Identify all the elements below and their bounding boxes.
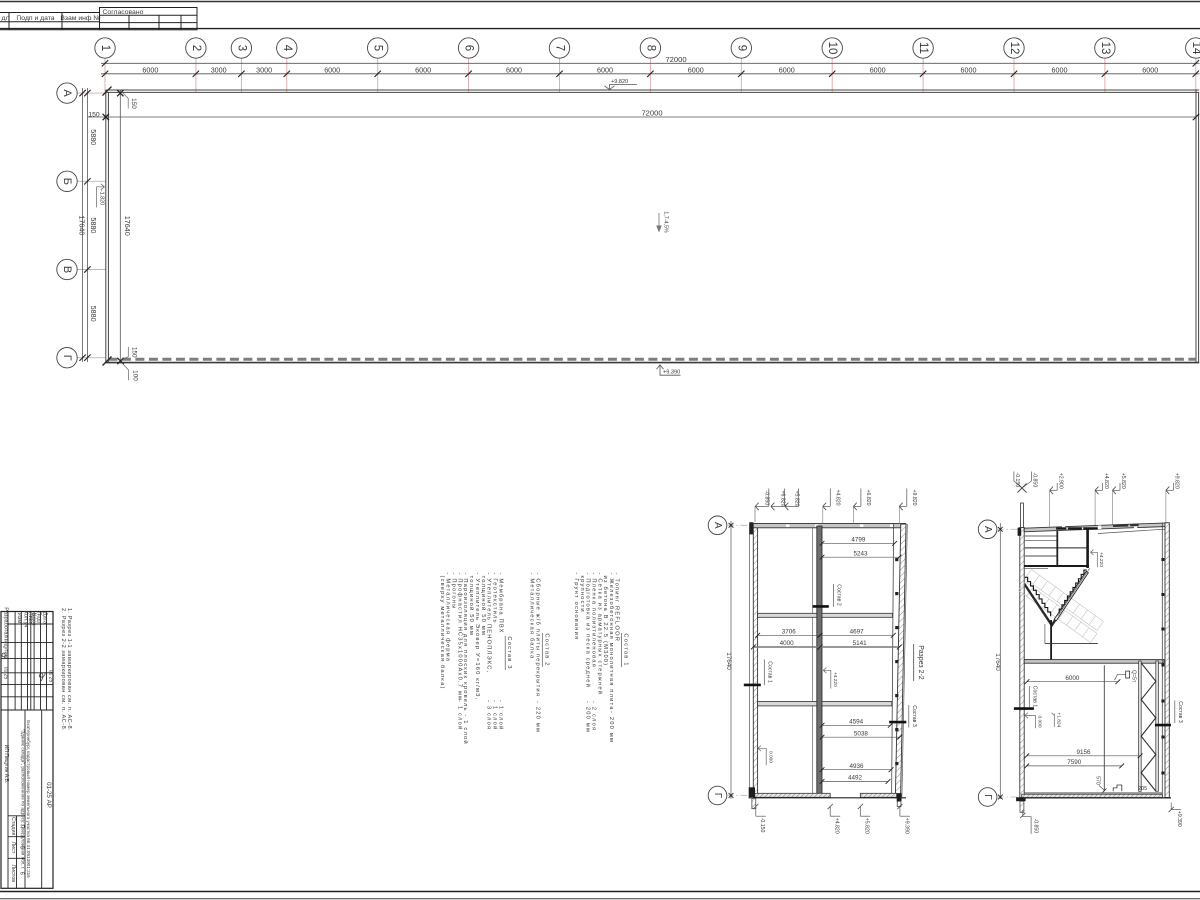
svg-text:2: 2 [190, 45, 202, 51]
svg-text:Согласовано: Согласовано [103, 9, 144, 16]
svg-text:100: 100 [132, 370, 139, 381]
svg-text:1. Разрез 1-1 замаркирован см.: 1. Разрез 1-1 замаркирован см. л. АС-8. [66, 608, 72, 731]
svg-text:Разрез 2-2: Разрез 2-2 [917, 645, 924, 679]
svg-text:8: 8 [644, 45, 656, 51]
svg-text:+4.820: +4.820 [1103, 473, 1109, 489]
svg-text:+4.220: +4.220 [1098, 552, 1104, 567]
svg-text:Лист: Лист [10, 842, 16, 854]
svg-text:дл: дл [2, 15, 10, 22]
svg-text:5880: 5880 [89, 217, 98, 233]
svg-text:205: 205 [1138, 786, 1147, 792]
svg-text:Состав 1: Состав 1 [767, 661, 773, 683]
svg-text:7590: 7590 [1067, 759, 1082, 766]
svg-text:+4.220: +4.220 [832, 672, 838, 687]
svg-text:5141: 5141 [853, 640, 868, 647]
svg-text:17640: 17640 [123, 216, 132, 236]
svg-text:Состав 2: Состав 2 [836, 584, 842, 606]
svg-text:Г: Г [61, 355, 73, 361]
svg-text:01.25: 01.25 [48, 670, 54, 683]
svg-text:+6.820: +6.820 [779, 491, 785, 507]
svg-text:+9.820: +9.820 [611, 79, 628, 85]
svg-text:6000: 6000 [779, 65, 795, 74]
svg-text:6: 6 [19, 872, 25, 875]
svg-text:+4.820: +4.820 [834, 818, 840, 834]
svg-text:-0.150: -0.150 [1014, 473, 1020, 488]
svg-text:Q=5т: Q=5т [1130, 670, 1136, 683]
svg-text:- Грунт основания: - Грунт основания [573, 573, 579, 641]
svg-text:+9.390: +9.390 [1176, 811, 1182, 827]
svg-text:1: 1 [99, 45, 111, 51]
svg-text:А: А [712, 522, 723, 529]
svg-text:А: А [982, 526, 993, 533]
svg-text:А: А [61, 89, 73, 97]
svg-text:+6.820: +6.820 [865, 490, 871, 506]
svg-text:+2.900: +2.900 [1057, 473, 1063, 489]
svg-text:3706: 3706 [782, 629, 797, 636]
svg-text:1,7-4,5%: 1,7-4,5% [663, 211, 669, 233]
svg-text:9156: 9156 [1076, 749, 1091, 756]
svg-text:- Металлическая балка: - Металлическая балка [529, 573, 535, 660]
svg-text:Состав 3: Состав 3 [911, 705, 917, 727]
svg-text:4000: 4000 [780, 640, 795, 647]
svg-text:-0.150: -0.150 [759, 818, 765, 833]
svg-text:6000: 6000 [1052, 65, 1068, 74]
svg-text:- 3 слоя: - 3 слоя [486, 700, 492, 730]
svg-text:Г: Г [712, 793, 723, 799]
svg-text:4594: 4594 [849, 719, 864, 726]
svg-text:7: 7 [554, 45, 566, 51]
svg-text:Екатеринбург, кадастровый номе: Екатеринбург, кадастровый номер земельно… [26, 720, 32, 878]
svg-text:6000: 6000 [597, 65, 613, 74]
svg-text:Состав 3: Состав 3 [1177, 701, 1183, 723]
svg-text:6000: 6000 [324, 65, 340, 74]
svg-text:13: 13 [1099, 42, 1111, 55]
svg-text:+5.820: +5.820 [793, 491, 799, 507]
svg-text:01.25: 01.25 [2, 667, 8, 680]
svg-text:17640: 17640 [725, 652, 732, 670]
svg-text:Разработал: Разработал [2, 607, 8, 637]
svg-text:+9.820: +9.820 [1174, 473, 1180, 489]
svg-text:(сверху металлическая балка): (сверху металлическая балка) [439, 576, 445, 690]
svg-text:Листов: Листов [10, 865, 16, 883]
svg-text:5: 5 [372, 45, 384, 51]
svg-text:5243: 5243 [853, 550, 868, 557]
svg-text:5038: 5038 [854, 730, 869, 737]
svg-text:4: 4 [281, 45, 293, 52]
svg-text:Б: Б [61, 178, 73, 185]
svg-text:+1.824: +1.824 [1056, 712, 1062, 727]
svg-text:Состав 1: Состав 1 [623, 633, 629, 666]
svg-text:11: 11 [917, 42, 929, 54]
svg-text:4697: 4697 [850, 629, 865, 636]
svg-text:-0.850: -0.850 [1032, 473, 1038, 488]
svg-text:+5.820: +5.820 [864, 818, 870, 834]
svg-text:6: 6 [463, 45, 475, 51]
svg-text:3000: 3000 [256, 65, 272, 74]
svg-text:ИП Пицугин А.В.: ИП Пицугин А.В. [3, 745, 9, 784]
svg-text:6000: 6000 [506, 65, 522, 74]
svg-text:- 200 мм: - 200 мм [608, 711, 614, 743]
svg-text:Подп и дата: Подп и дата [16, 15, 54, 22]
svg-text:5880: 5880 [89, 129, 98, 145]
svg-text:-0.850: -0.850 [1033, 819, 1039, 834]
svg-text:"Здание склада", расположенное: "Здание склада", расположенное по адресу… [21, 729, 26, 869]
svg-text:Г: Г [982, 794, 993, 800]
svg-text:6000: 6000 [1142, 65, 1158, 74]
svg-text:- 220 мм: - 220 мм [534, 701, 540, 733]
svg-text:Состав 2: Состав 2 [543, 633, 549, 666]
svg-text:+4.820: +4.820 [834, 490, 840, 506]
svg-text:- 200 мм: - 200 мм [585, 701, 591, 733]
svg-text:-0.850: -0.850 [764, 491, 770, 506]
svg-text:150: 150 [130, 347, 137, 358]
svg-text:6000: 6000 [961, 65, 977, 74]
svg-text:Стадия: Стадия [10, 817, 16, 835]
svg-text:4492: 4492 [848, 775, 863, 782]
svg-text:3000: 3000 [211, 65, 227, 74]
svg-text:+9.390: +9.390 [663, 370, 680, 376]
svg-text:01-25 АР: 01-25 АР [45, 782, 52, 808]
svg-text:17640: 17640 [77, 215, 86, 235]
svg-text:4799: 4799 [851, 537, 866, 544]
svg-text:6000: 6000 [1065, 675, 1080, 682]
svg-text:+9.390: +9.390 [903, 818, 909, 834]
svg-text:В: В [61, 266, 73, 273]
svg-text:Состав 1: Состав 1 [1032, 686, 1038, 708]
svg-text:72000: 72000 [665, 55, 686, 64]
svg-text:0.000: 0.000 [768, 751, 774, 763]
svg-text:14: 14 [1190, 42, 1200, 55]
svg-text:6000: 6000 [870, 65, 886, 74]
svg-text:- 1 слой: - 1 слой [456, 700, 463, 730]
svg-text:12: 12 [1008, 42, 1020, 55]
svg-text:6000: 6000 [688, 65, 704, 74]
svg-text:3: 3 [235, 45, 247, 51]
svg-text:10: 10 [826, 42, 838, 55]
svg-text:5880: 5880 [89, 306, 98, 322]
svg-text:+9.820: +9.820 [911, 490, 917, 506]
svg-text:17640: 17640 [994, 653, 1001, 671]
svg-text:4936: 4936 [849, 763, 864, 770]
svg-text:150: 150 [88, 112, 100, 119]
svg-text:Подп: Подп [35, 611, 41, 624]
svg-text:+5.820: +5.820 [1120, 473, 1126, 489]
svg-text:-1.820: -1.820 [99, 190, 105, 205]
svg-text:Взам инф №: Взам инф № [60, 15, 100, 22]
svg-text:72000: 72000 [641, 109, 662, 118]
svg-text:Изм: Изм [16, 613, 22, 624]
svg-text:9: 9 [735, 45, 747, 51]
svg-text:6000: 6000 [142, 65, 158, 74]
svg-text:Дата: Дата [42, 612, 48, 625]
svg-text:6000: 6000 [415, 65, 431, 74]
svg-text:0.000: 0.000 [1037, 715, 1043, 727]
svg-text:570: 570 [1095, 776, 1101, 785]
svg-text:Состав 3: Состав 3 [506, 636, 512, 669]
svg-text:2. Разрез 2-2 замаркирован см.: 2. Разрез 2-2 замаркирован см. л. АС-8. [60, 608, 66, 731]
svg-text:150: 150 [130, 98, 137, 109]
